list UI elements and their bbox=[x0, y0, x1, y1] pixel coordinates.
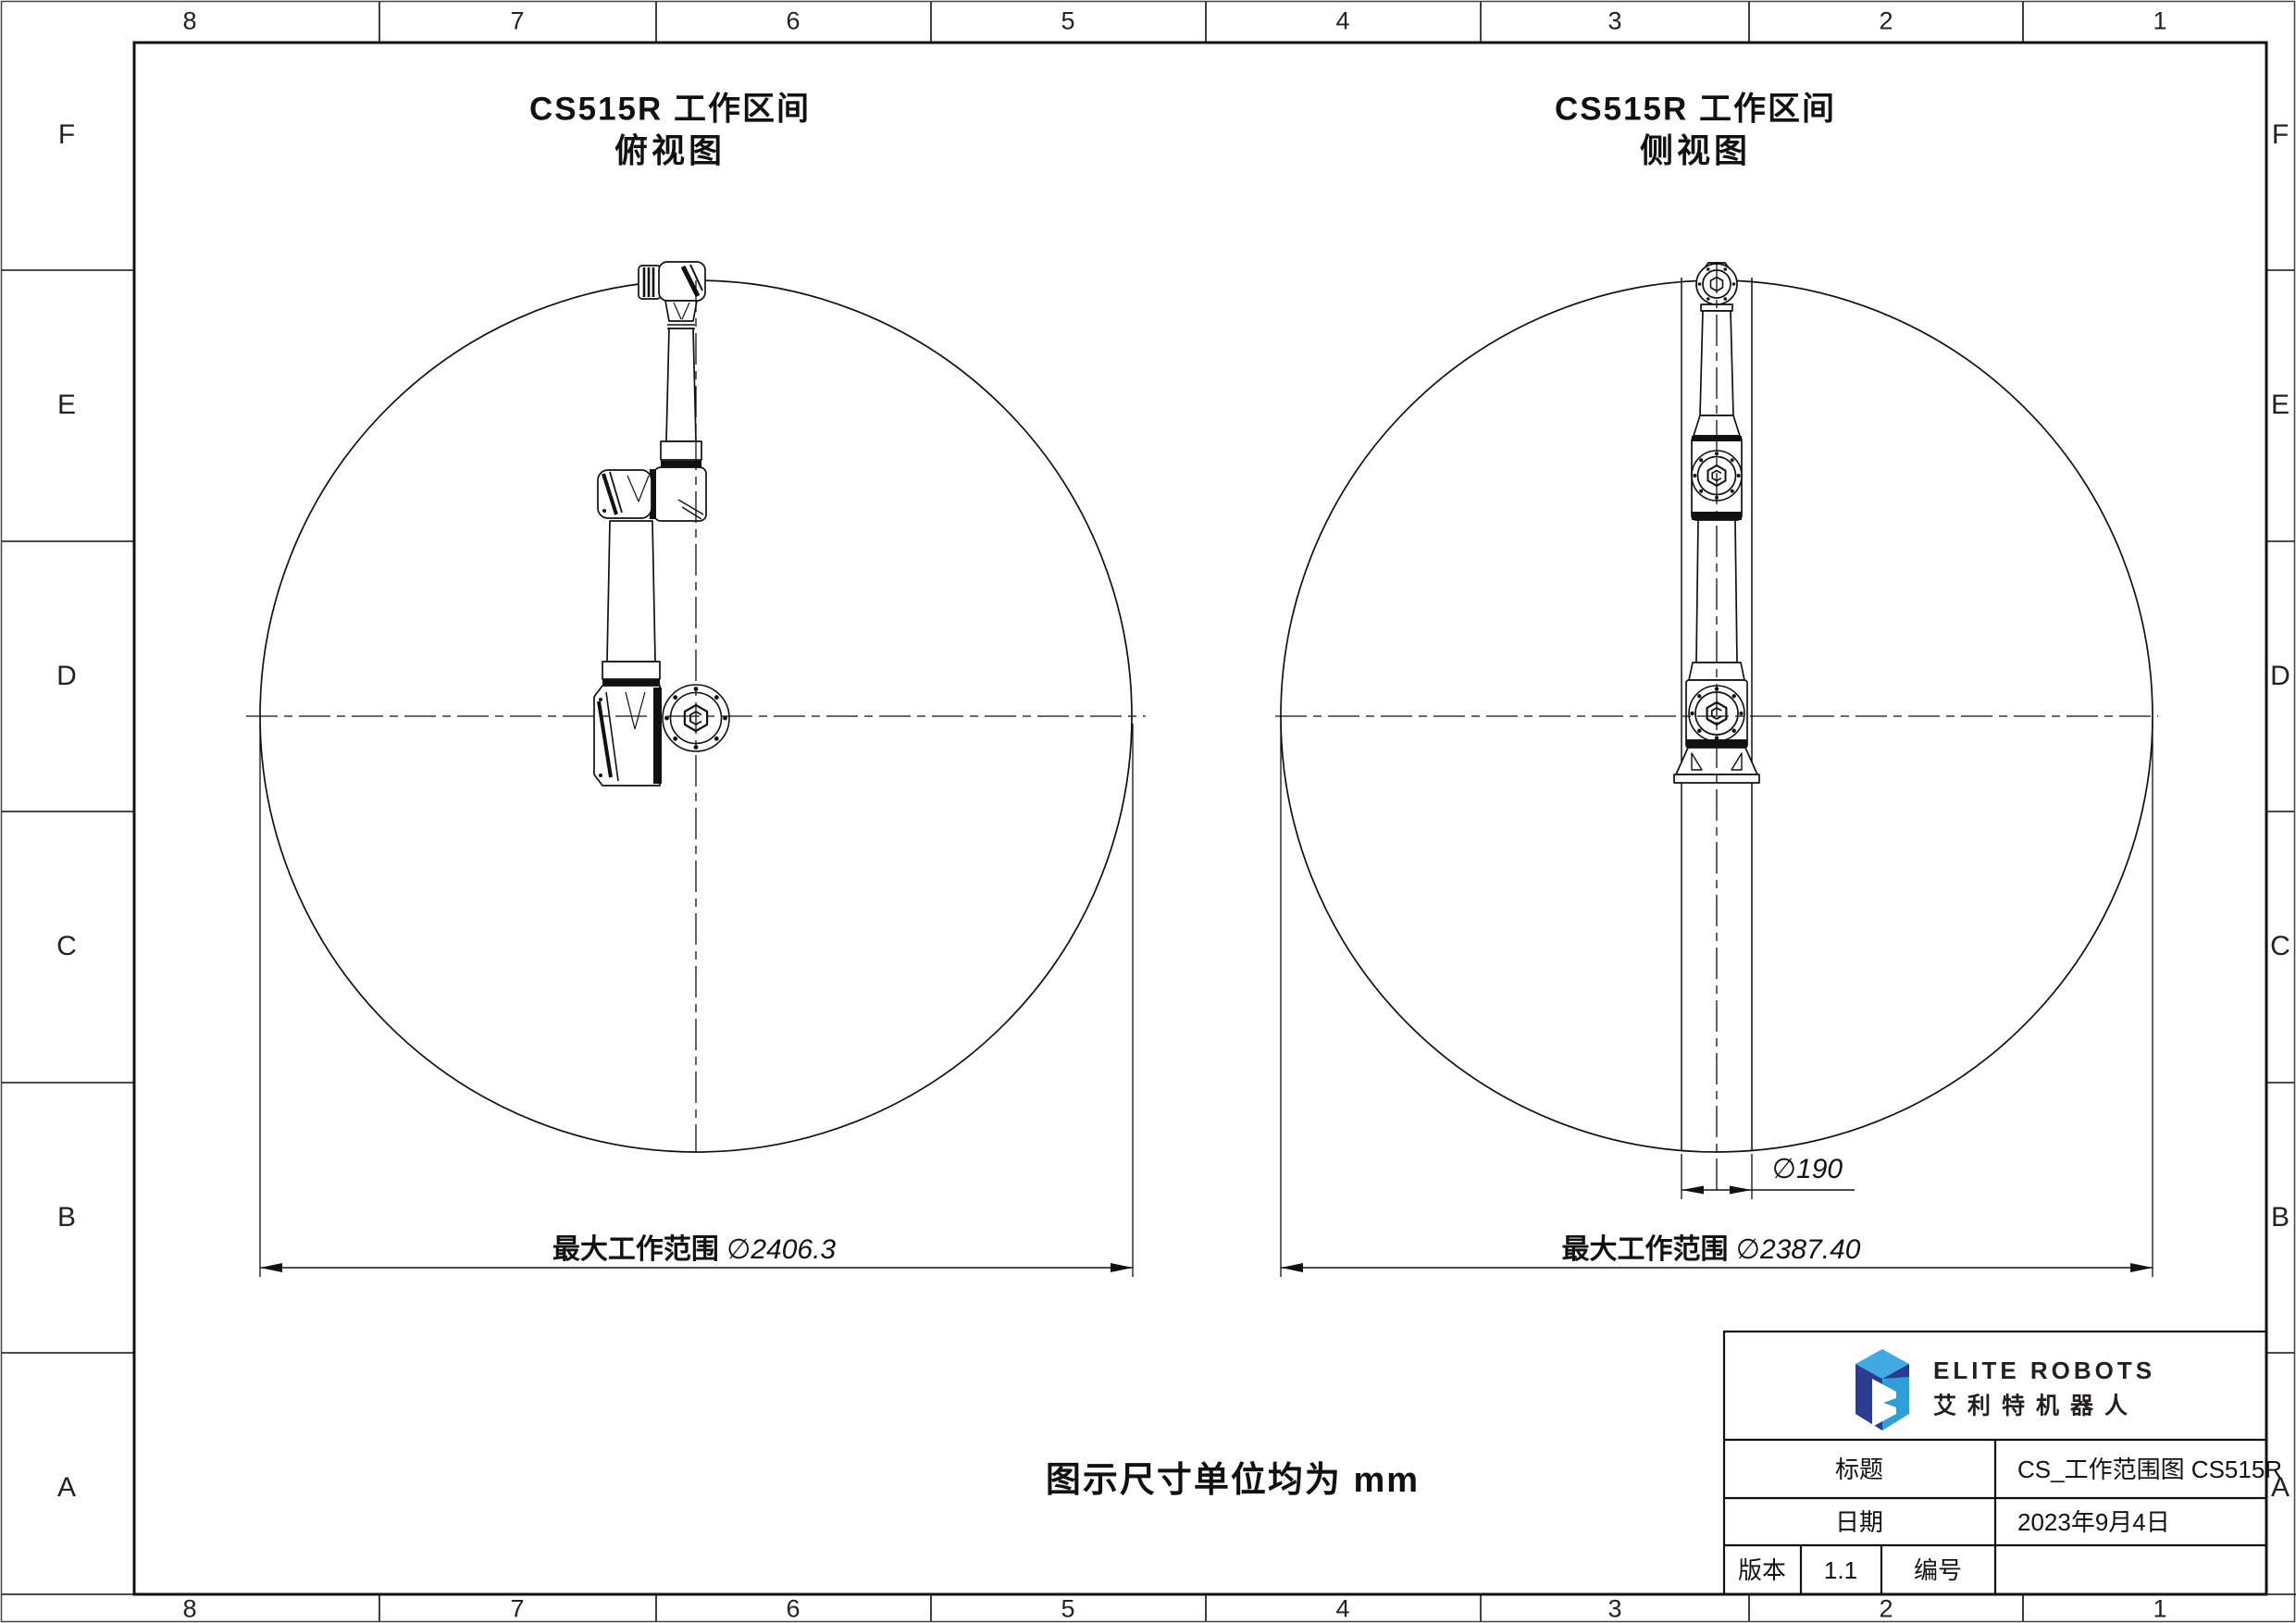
version-value: 1.1 bbox=[1824, 1558, 1857, 1582]
zone-col-label: 7 bbox=[510, 9, 524, 34]
dim-arrow-right bbox=[1730, 1186, 1752, 1195]
title-value: CS_工作范围图 CS515R bbox=[2017, 1457, 2282, 1481]
zone-col-label: 4 bbox=[1335, 1597, 1349, 1622]
upper-arm-link bbox=[607, 521, 655, 662]
brand-name-cn: 艾利特机器人 bbox=[1933, 1395, 2139, 1419]
date-value: 2023年9月4日 bbox=[2017, 1510, 2170, 1534]
zone-col-label: 3 bbox=[1607, 1597, 1621, 1622]
units-note: 图示尺寸单位均为 mm bbox=[1046, 1463, 1420, 1498]
zone-row-label: E bbox=[57, 391, 76, 419]
zone-row-label: A bbox=[57, 1474, 76, 1502]
title-label: 标题 bbox=[1835, 1457, 1883, 1481]
dim-arrow-left bbox=[1682, 1186, 1704, 1195]
elite-logo-icon bbox=[1855, 1349, 1909, 1431]
dim-arrow-left bbox=[260, 1263, 282, 1272]
dim-label: 最大工作范围 bbox=[552, 1234, 719, 1265]
dim-value: ∅190 bbox=[1772, 1154, 1843, 1184]
dim-value: ∅2387.40 bbox=[1736, 1234, 1861, 1265]
zone-col-label: 1 bbox=[2153, 1597, 2166, 1622]
version-label: 版本 bbox=[1738, 1558, 1786, 1582]
dim-arrow-right bbox=[2130, 1263, 2153, 1272]
zone-col-label: 5 bbox=[1061, 9, 1074, 34]
top-view-title: CS515R 工作区间 bbox=[529, 93, 811, 126]
dim-label: 最大工作范围 bbox=[1562, 1234, 1729, 1265]
zone-row-label: E bbox=[2271, 391, 2290, 419]
top-view-extension-lines bbox=[260, 724, 1133, 1277]
zone-col-label: 2 bbox=[1879, 9, 1893, 34]
elbow-housing bbox=[654, 467, 706, 521]
zone-col-label: 1 bbox=[2153, 9, 2166, 34]
zone-row-label: F bbox=[58, 121, 75, 149]
zone-col-label: 4 bbox=[1335, 9, 1349, 34]
brand-name-en: ELITE ROBOTS bbox=[1933, 1358, 2155, 1382]
top-view bbox=[246, 262, 1146, 1277]
side-view-dim-text: 最大工作范围 ∅2387.40 bbox=[1562, 1236, 1861, 1264]
forearm-link bbox=[666, 328, 696, 441]
column-dim-text: ∅190 bbox=[1772, 1156, 1843, 1183]
zone-col-label: 3 bbox=[1607, 9, 1621, 34]
zone-col-label: 6 bbox=[786, 9, 800, 34]
dim-arrow-right bbox=[1111, 1263, 1133, 1272]
dim-arrow-left bbox=[1281, 1263, 1303, 1272]
zone-row-label: B bbox=[57, 1204, 76, 1232]
top-view-subtitle: 俯视图 bbox=[614, 134, 726, 167]
zone-row-label: B bbox=[2271, 1204, 2290, 1232]
zone-row-label: C bbox=[2270, 933, 2290, 960]
top-view-centerlines bbox=[246, 280, 1146, 1153]
zone-row-label: C bbox=[56, 933, 77, 960]
zone-col-label: 8 bbox=[182, 9, 196, 34]
zone-col-label: 5 bbox=[1061, 1597, 1074, 1622]
number-label: 编号 bbox=[1914, 1558, 1962, 1582]
zone-col-label: 7 bbox=[510, 1597, 524, 1622]
side-view-subtitle: 侧视图 bbox=[1640, 134, 1751, 167]
date-label: 日期 bbox=[1835, 1510, 1883, 1534]
zone-row-label: D bbox=[2270, 663, 2290, 690]
zone-col-label: 6 bbox=[786, 1597, 800, 1622]
zone-row-label: F bbox=[2272, 121, 2289, 149]
side-view-title: CS515R 工作区间 bbox=[1555, 93, 1836, 126]
side-view bbox=[1275, 262, 2158, 1277]
drawing-sheet: 8 7 6 5 4 3 2 1 8 7 6 5 4 3 2 1 F E D C … bbox=[0, 0, 2296, 1623]
zone-row-label: D bbox=[56, 663, 77, 690]
top-view-dim-text: 最大工作范围 ∅2406.3 bbox=[552, 1236, 836, 1264]
dim-value: ∅2406.3 bbox=[726, 1234, 836, 1265]
zone-col-label: 2 bbox=[1879, 1597, 1893, 1622]
robot-top-view bbox=[594, 262, 729, 786]
zone-col-label: 8 bbox=[182, 1597, 196, 1622]
